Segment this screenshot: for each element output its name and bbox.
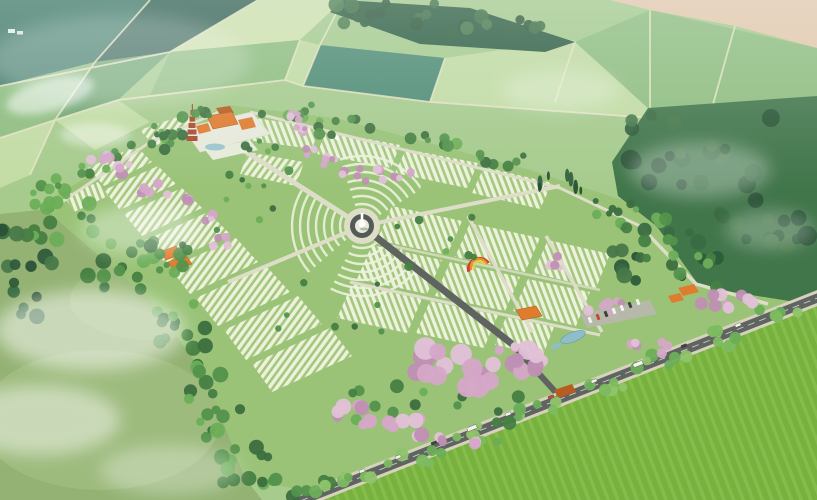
haze-overlay xyxy=(0,0,817,500)
aerial-rendering xyxy=(0,0,817,500)
